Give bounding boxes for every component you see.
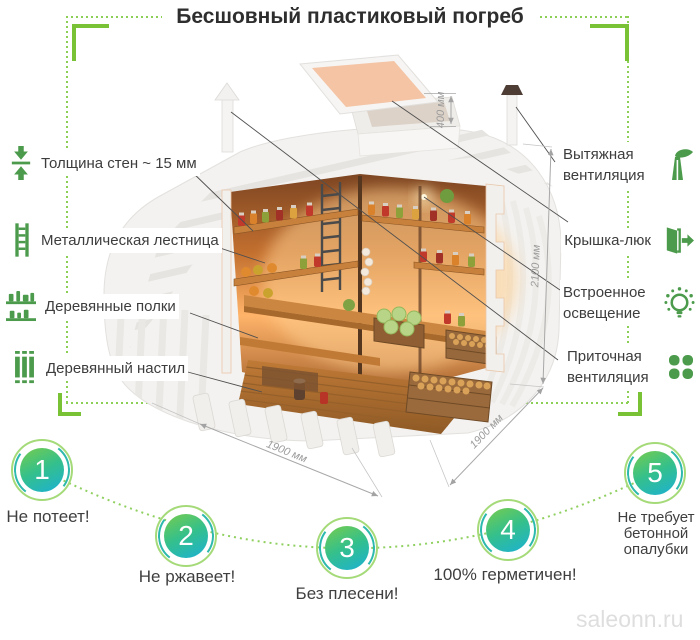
benefit-label-3: Без плесени! — [286, 584, 408, 604]
benefit-label-5: Не требует бетонной опалубки — [610, 510, 700, 558]
dim-body-height: 2100 мм — [529, 244, 543, 288]
feature-hatch-lid: Крышка-люк — [560, 226, 694, 255]
feature-wooden-decking: Деревянный настил — [12, 351, 188, 385]
feature-label: Вытяжная вентиляция — [560, 142, 654, 188]
supply-vent-pipe — [215, 83, 239, 152]
benefit-badge-1: 1 — [11, 439, 73, 501]
exhaust-vent-icon — [664, 148, 694, 182]
light-bulb-icon — [663, 285, 696, 321]
feature-label: Приточная вентиляция — [564, 344, 658, 390]
feature-supply-vent: Приточная вентиляция — [560, 344, 694, 390]
badge-number: 2 — [164, 514, 208, 558]
benefit-badge-3: 3 — [316, 517, 378, 579]
benefit-badge-5: 5 — [624, 442, 686, 504]
page-title: Бесшовный пластиковый погреб — [0, 5, 700, 29]
feature-label: Металлическая лестница — [38, 228, 222, 253]
dim-hatch-height: 400 мм — [435, 91, 447, 128]
infographic-canvas: Бесшовный пластиковый погреб — [0, 0, 700, 640]
hatch-door-icon — [664, 226, 694, 255]
benefit-label-4: 100% герметичен! — [420, 565, 590, 585]
feature-wooden-shelves: Деревянные полки — [6, 290, 179, 323]
benefit-badge-2: 2 — [155, 505, 217, 567]
feature-wall-thickness: Толщина стен ~ 15 мм — [10, 146, 200, 180]
dim-width: 1900 мм — [265, 438, 309, 465]
feature-label: Деревянный настил — [43, 356, 188, 381]
badge-number: 3 — [325, 526, 369, 570]
feature-label: Деревянные полки — [42, 294, 179, 319]
wall-thickness-icon — [10, 146, 32, 180]
feature-label: Встроенное освещение — [560, 280, 653, 326]
feature-label: Крышка-люк — [561, 228, 654, 253]
planks-icon — [12, 351, 37, 385]
feature-label: Толщина стен ~ 15 мм — [38, 151, 200, 176]
feature-metal-ladder: Металлическая лестница — [12, 222, 222, 258]
exhaust-vent-pipe — [501, 85, 523, 145]
fan-icon — [668, 354, 694, 380]
feature-exhaust-vent: Вытяжная вентиляция — [560, 142, 694, 188]
benefit-badge-4: 4 — [477, 499, 539, 561]
feature-built-in-light: Встроенное освещение — [560, 280, 696, 326]
ladder-icon — [12, 222, 32, 258]
benefit-label-2: Не ржавеет! — [137, 567, 237, 587]
benefit-label-1: Не потеет! — [0, 507, 96, 527]
badge-number: 1 — [20, 448, 64, 492]
badge-number: 5 — [633, 451, 677, 495]
watermark: saleonn.ru — [576, 606, 683, 633]
badge-number: 4 — [486, 508, 530, 552]
shelves-icon — [6, 290, 36, 323]
